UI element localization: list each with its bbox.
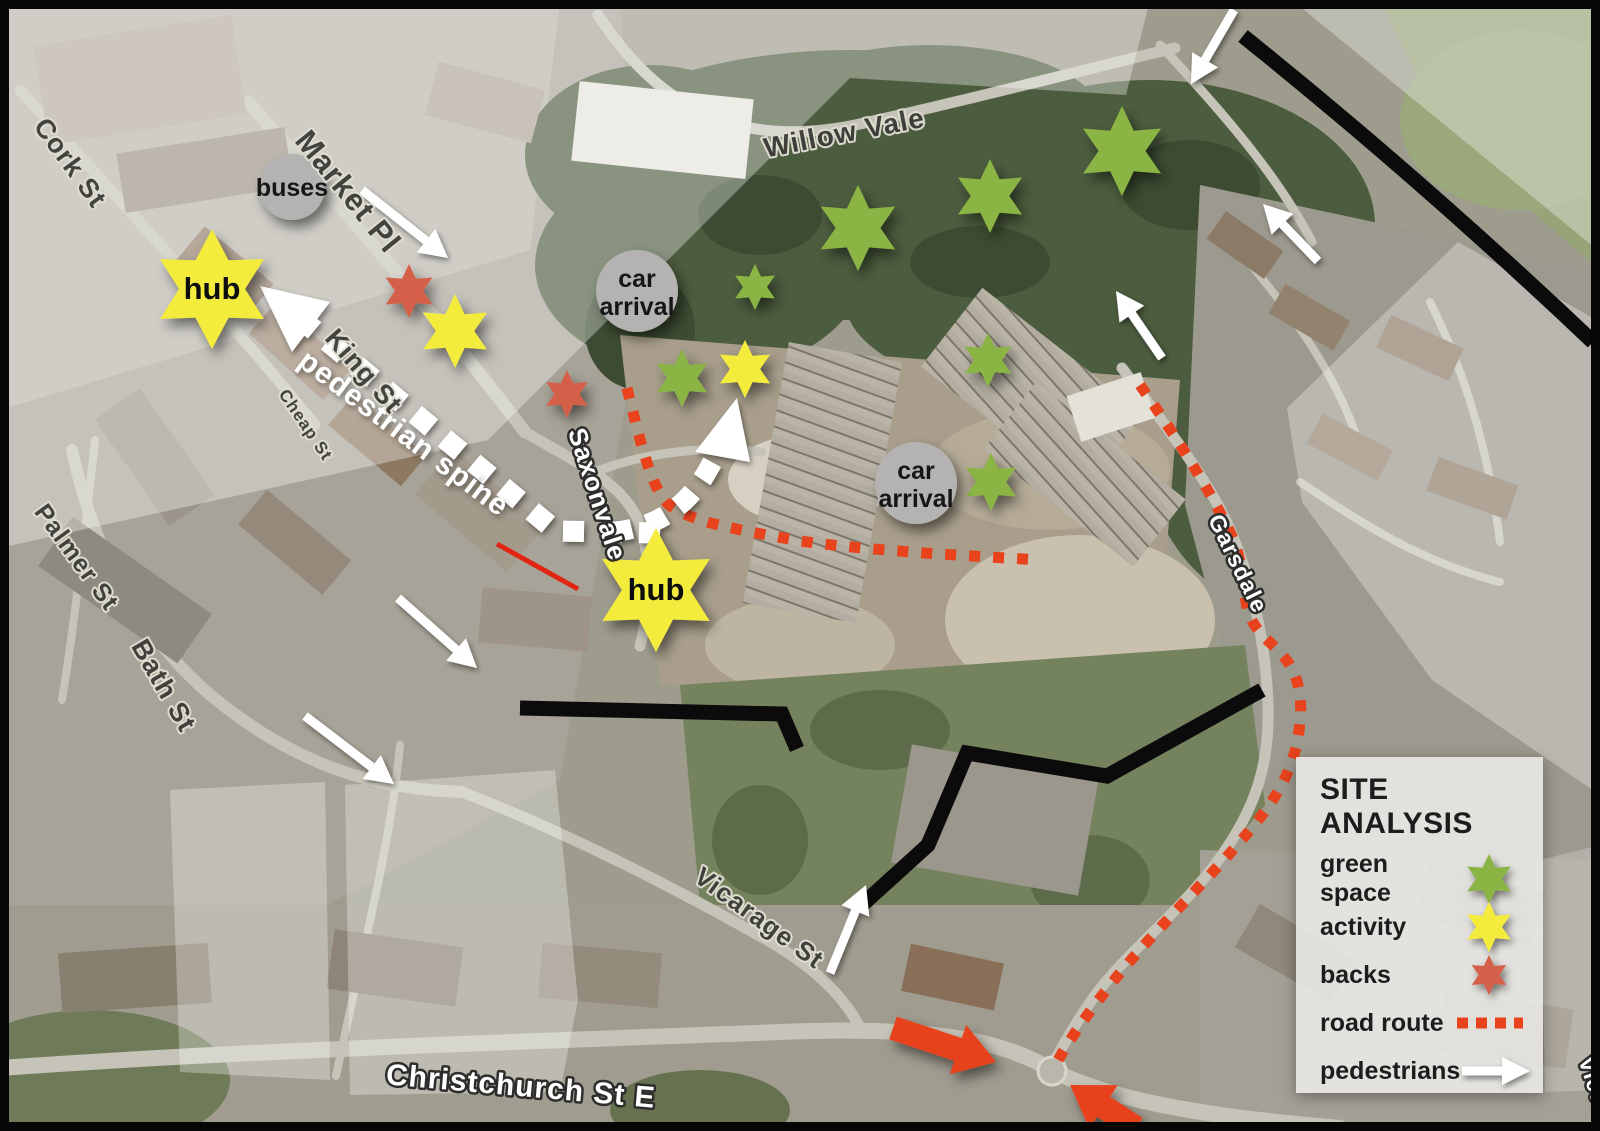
site-analysis-map: pedestrian spine hubhub busescararrivalc…	[0, 0, 1600, 1131]
vehicle-arrow	[889, 1017, 996, 1075]
street-label: Saxonvale	[562, 424, 633, 564]
legend-item-backs: backs	[1320, 951, 1543, 999]
street-label: Palmer St	[29, 499, 125, 616]
green-star	[657, 349, 707, 407]
street-label: Cheap St	[275, 386, 336, 464]
pedestrian-arrow	[398, 598, 477, 668]
legend-title: SITE ANALYSIS	[1320, 773, 1543, 841]
green-star	[821, 185, 895, 271]
yellow-star	[720, 340, 770, 398]
legend-item-pedestrians: pedestrians	[1320, 1047, 1543, 1095]
black-line-top-right	[1243, 36, 1593, 342]
legend-item-label: pedestrians	[1320, 1057, 1460, 1086]
hub-label: hub	[184, 271, 241, 306]
legend-item-green-space: green space	[1320, 855, 1543, 903]
green-star	[1083, 106, 1161, 196]
pedestrian-arrow	[1116, 291, 1162, 358]
legend-item-marker-arrow	[1460, 1043, 1532, 1099]
spine-arrowhead-north	[695, 398, 750, 462]
street-label: Vicarage St	[689, 861, 830, 975]
green-star	[958, 159, 1022, 233]
pedestrian-arrow	[830, 885, 869, 973]
street-label: Christchurch St E	[385, 1058, 657, 1114]
map-circle-car-arrival: cararrival	[596, 250, 678, 332]
map-circle-car-arrival: cararrival	[875, 442, 957, 524]
road-route-east	[1054, 385, 1301, 1068]
green-star	[965, 333, 1012, 387]
pedestrian-spine-label: pedestrian spine	[292, 344, 515, 523]
hub-star: hub	[160, 229, 264, 349]
pedestrian-arrow	[1263, 204, 1318, 261]
black-line-centre	[520, 708, 797, 749]
pedestrian-arrow	[305, 716, 394, 784]
legend-item-label: backs	[1320, 961, 1391, 990]
hub-label: hub	[628, 572, 685, 607]
legend-panel: SITE ANALYSIS green spaceactivitybacksro…	[1296, 757, 1543, 1093]
legend-item-label: activity	[1320, 913, 1406, 942]
vehicle-arrows	[889, 1017, 1142, 1131]
street-label: Bath St	[125, 634, 202, 737]
street-label: Willow Vale	[761, 102, 927, 164]
vehicle-arrow	[1070, 1085, 1143, 1131]
legend-item-road-route: road route	[1320, 999, 1543, 1047]
green-star	[966, 453, 1016, 511]
yellow-star	[423, 294, 487, 368]
red-star	[386, 264, 433, 318]
green-star	[735, 264, 775, 310]
red-star	[546, 370, 588, 418]
pedestrian-arrow	[1191, 10, 1234, 84]
street-label: Garsdale	[1203, 510, 1273, 617]
street-label: Cork St	[28, 112, 113, 213]
legend-item-activity: activity	[1320, 903, 1543, 951]
legend-item-label: road route	[1320, 1009, 1444, 1038]
red-mark-line	[497, 544, 578, 589]
black-line-south	[862, 690, 1262, 905]
legend-item-label: green space	[1320, 850, 1453, 908]
street-label: Victoria	[1574, 1054, 1600, 1131]
star-markers	[386, 106, 1161, 511]
